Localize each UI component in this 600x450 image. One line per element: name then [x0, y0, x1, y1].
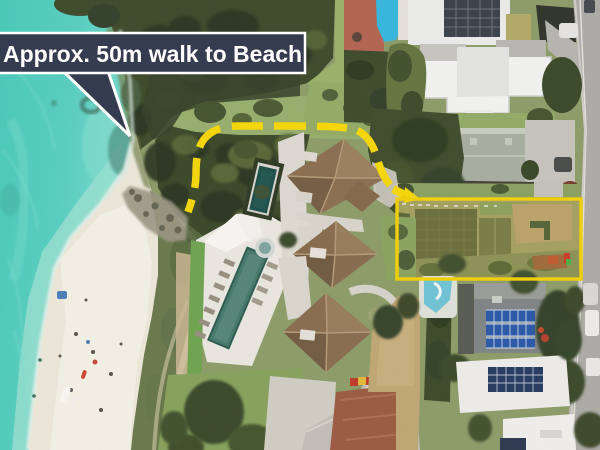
svg-text:Approx. 50m walk to Beach: Approx. 50m walk to Beach	[3, 41, 302, 67]
